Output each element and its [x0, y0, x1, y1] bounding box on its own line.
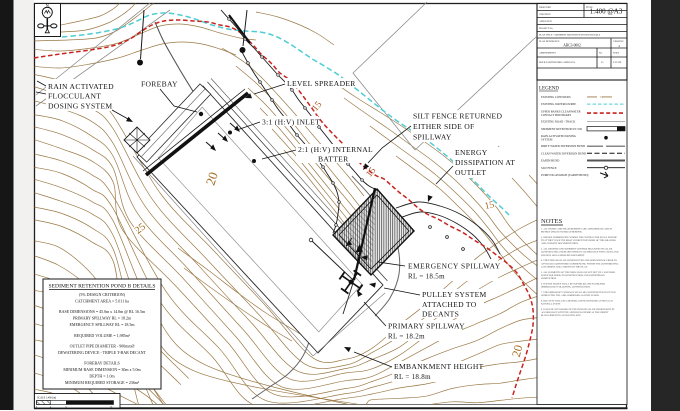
- svg-text:SEDIMENT RETENTION PC ND: SEDIMENT RETENTION PC ND: [541, 127, 582, 131]
- svg-text:SPILLWAY: SPILLWAY: [413, 132, 452, 141]
- svg-text:RAIN ACTIVATED: RAIN ACTIVATED: [48, 82, 114, 91]
- svg-text:OUTLET PIPE DIAMETER - 900mmØ: OUTLET PIPE DIAMETER - 900mmØ: [70, 344, 135, 349]
- svg-text:3:1 (H:V) INLET: 3:1 (H:V) INLET: [262, 118, 320, 127]
- svg-text:CHECKED: CHECKED: [539, 13, 551, 16]
- svg-text:PRIMARY SPILLWAY: PRIMARY SPILLWAY: [388, 322, 465, 331]
- svg-text:BULK EARTHWORKS APPROVAL: BULK EARTHWORKS APPROVAL: [539, 61, 576, 64]
- svg-text:FOREBAY DETAILS: FOREBAY DETAILS: [84, 361, 120, 366]
- svg-text:MANAGEMENT PLAN FOR THIS SITE.: MANAGEMENT PLAN FOR THIS SITE.: [541, 314, 582, 317]
- svg-text:DECANTS: DECANTS: [422, 310, 459, 319]
- svg-text:OUTLET: OUTLET: [455, 168, 486, 177]
- svg-text:DOSING SYSTEM: DOSING SYSTEM: [48, 101, 112, 110]
- svg-text:PRIMARY SPILLWAY RL = 18.2m: PRIMARY SPILLWAY RL = 18.2m: [73, 316, 132, 321]
- svg-text:EMBANKMENT HEIGHT: EMBANKMENT HEIGHT: [394, 362, 484, 371]
- svg-text:PULLEY SYSTEM: PULLEY SYSTEM: [422, 290, 487, 299]
- svg-text:RL = 18.2m: RL = 18.2m: [388, 333, 425, 341]
- svg-text:VERSION: VERSION: [613, 40, 624, 43]
- svg-text:CLEAN WATER DIVERSION BUND: CLEAN WATER DIVERSION BUND: [541, 151, 586, 155]
- svg-text:EARTH BUND: EARTH BUND: [541, 159, 559, 163]
- svg-text:1:400 @A3: 1:400 @A3: [590, 8, 623, 16]
- svg-text:(5% DESIGN CRITERION): (5% DESIGN CRITERION): [79, 292, 126, 297]
- svg-text:RAINFALL EVENT.: RAINFALL EVENT.: [541, 303, 561, 306]
- svg-text:APPROVED: APPROVED: [539, 20, 552, 23]
- svg-text:IMMEDIATELY FOLLOWING CONSTRUC: IMMEDIATELY FOLLOWING CONSTRUCTION.: [541, 286, 591, 289]
- svg-text:EITHER SIDE OF: EITHER SIDE OF: [413, 122, 475, 131]
- svg-text:SYSTEM: SYSTEM: [541, 138, 553, 142]
- svg-text:PLAN TITLE - SEDIMENT RETENTIO: PLAN TITLE - SEDIMENT RETENTION POND B D…: [539, 34, 601, 37]
- svg-text:MINIMUM REQUIRED STORAGE = 236: MINIMUM REQUIRED STORAGE = 236m³: [65, 380, 140, 385]
- svg-text:BASE DIMENSIONS = 45.0m x 14.0: BASE DIMENSIONS = 45.0m x 14.0m @ RL 16.…: [59, 309, 146, 314]
- svg-text:SCALE 1:400 (m): SCALE 1:400 (m): [37, 396, 56, 399]
- svg-text:DEWATERING DEVICE - TRIPLE T-B: DEWATERING DEVICE - TRIPLE T-BAR DECANT: [58, 350, 147, 355]
- svg-text:SEDIMENT RETENTION POND B DETA: SEDIMENT RETENTION POND B DETAILS: [49, 284, 156, 290]
- svg-text:RL = 18.8m: RL = 18.8m: [394, 373, 431, 381]
- svg-text:CONTACT BOUNDARY: CONTACT BOUNDARY: [541, 113, 572, 117]
- svg-text:EXISTING ROAD / TRACK: EXISTING ROAD / TRACK: [541, 120, 576, 124]
- svg-text:P. DATE: P. DATE: [613, 61, 622, 64]
- svg-text:COMPLETION.: COMPLETION.: [541, 277, 557, 280]
- svg-text:ATTACHED TO: ATTACHED TO: [422, 300, 477, 309]
- svg-text:FLOCCULANT: FLOCCULANT: [48, 92, 101, 101]
- svg-text:EMERGENCY SPILLWAY RL = 18.5m: EMERGENCY SPILLWAY RL = 18.5m: [69, 322, 135, 327]
- svg-text:DISSIPATION AT: DISSIPATION AT: [455, 158, 515, 167]
- svg-text:PLAN REFERENCE: PLAN REFERENCE: [539, 40, 560, 43]
- svg-text:AND CONSENT DOCUMENTATION.: AND CONSENT DOCUMENTATION.: [541, 242, 579, 245]
- svg-text:METRES UNLESS NOTED OTHERWISE.: METRES UNLESS NOTED OTHERWISE.: [541, 231, 583, 234]
- svg-text:ARC3-0002: ARC3-0002: [563, 44, 581, 48]
- svg-text:NOTES: NOTES: [541, 218, 563, 225]
- svg-text:DATE: DATE: [613, 52, 620, 55]
- svg-text:DEPTH = 1.0m: DEPTH = 1.0m: [89, 374, 115, 379]
- svg-text:MINIMUM BASE DIMENSION = 30m x: MINIMUM BASE DIMENSION = 30m x 5.0m: [63, 367, 141, 372]
- svg-text:EMERGENCY SPILLWAY: EMERGENCY SPILLWAY: [408, 262, 501, 271]
- svg-text:FOREBAY: FOREBAY: [141, 80, 178, 89]
- svg-text:COMPACTED FILL AND ARMOURED AG: COMPACTED FILL AND ARMOURED AGAINST SCOU…: [541, 294, 600, 297]
- svg-text:SILT FENCE: SILT FENCE: [541, 166, 557, 170]
- svg-text:RL = 18.5m: RL = 18.5m: [408, 273, 445, 281]
- svg-text:EXISTING WATERCOURSE: EXISTING WATERCOURSE: [541, 102, 576, 106]
- svg-text:PUMP EXCAVATION (EARTH BUND): PUMP EXCAVATION (EARTH BUND): [541, 173, 588, 177]
- svg-text:EXISTING CONTOURS: EXISTING CONTOURS: [541, 95, 571, 99]
- svg-text:ENERGY: ENERGY: [455, 148, 488, 157]
- svg-text:DIRTY WATER DIVERSION BUND: DIRTY WATER DIVERSION BUND: [541, 144, 585, 148]
- svg-text:LEVEL SPREADER: LEVEL SPREADER: [287, 79, 356, 88]
- svg-text:COUNCIL GD05 GUIDELINE DOCUMEN: COUNCIL GD05 GUIDELINE DOCUMENT.: [541, 254, 585, 257]
- svg-text:No.: No.: [599, 52, 603, 55]
- svg-text:CATCHMENT AREA SHOWN ON THIS P: CATCHMENT AREA SHOWN ON THIS PLAN.: [541, 265, 588, 268]
- svg-text:2:1 (H:V) INTERNAL: 2:1 (H:V) INTERNAL: [298, 145, 373, 154]
- svg-text:DESIGNED: DESIGNED: [539, 6, 551, 9]
- svg-text:SILT FENCE RETURNED: SILT FENCE RETURNED: [413, 112, 502, 121]
- svg-text:AMENDMENTS: AMENDMENTS: [539, 52, 557, 55]
- svg-text:CATCHMENT AREA = 5.011 ha: CATCHMENT AREA = 5.011 ha: [75, 299, 129, 304]
- svg-text:PROJECT No.: PROJECT No.: [539, 27, 554, 30]
- svg-text:BATTER: BATTER: [318, 155, 349, 164]
